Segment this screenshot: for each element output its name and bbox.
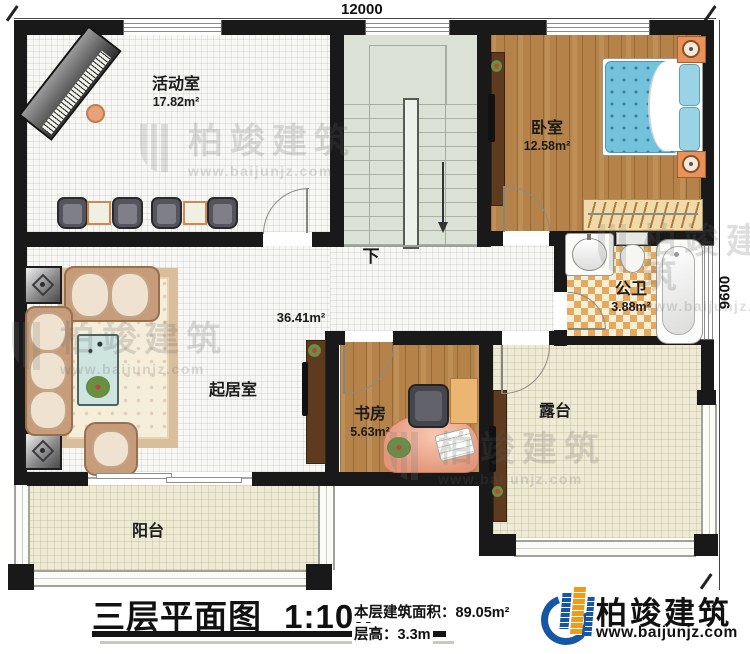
corner-block	[306, 564, 332, 590]
stairs-down-label: 下	[363, 247, 380, 267]
study-cabinet	[450, 378, 478, 424]
wall	[252, 472, 490, 486]
dimension-right-label: 9600	[717, 272, 734, 314]
nightstand	[677, 151, 706, 178]
sofa-cushion	[29, 312, 67, 352]
balcony-parapet	[30, 570, 308, 587]
sliding-door-panel	[166, 477, 242, 483]
sink-faucet	[587, 234, 591, 240]
balcony-floor	[26, 485, 318, 570]
desk-chair	[408, 384, 449, 428]
sofa-cushion	[29, 351, 67, 391]
desk-chair-seat	[415, 391, 442, 421]
stairs-center-rail	[403, 98, 419, 249]
corner-block	[8, 564, 34, 590]
corner-block	[697, 390, 716, 405]
corner-block	[694, 534, 718, 556]
closet-hangers	[586, 202, 700, 228]
wall	[325, 335, 339, 485]
stairs-flight-edge	[445, 45, 446, 245]
terrace-parapet	[701, 404, 717, 535]
sink-basin	[572, 238, 607, 271]
chair	[112, 197, 143, 229]
dimension-line-top	[14, 18, 716, 19]
living-area-value: 36.41m²	[277, 310, 325, 325]
room-label-terrace: 露台	[539, 403, 571, 422]
wall	[330, 20, 344, 247]
wall	[393, 331, 485, 345]
table-flowers	[86, 376, 110, 398]
sliding-door-panel	[96, 473, 172, 479]
floor-height-note: 层高：3.3m	[352, 623, 433, 644]
bathtub-inner	[662, 246, 695, 335]
terrace-parapet	[514, 540, 696, 557]
sink	[565, 233, 614, 276]
wall	[14, 20, 123, 35]
tv-cabinet-living	[306, 340, 326, 464]
chair	[207, 197, 238, 229]
piano-stool	[86, 104, 105, 123]
wall	[14, 232, 263, 247]
side-table	[183, 201, 207, 225]
room-label-bedroom: 卧室12.58m²	[524, 120, 571, 154]
coffee-table	[77, 334, 119, 406]
room-label-balcony: 阳台	[132, 523, 164, 542]
sofa-cushion	[110, 272, 150, 318]
floor-area-note: 本层建筑面积：89.05m²	[352, 601, 512, 622]
chair	[57, 197, 88, 229]
stairs-arrow-head-icon	[438, 222, 448, 233]
armchair-cushion	[92, 430, 130, 468]
plant	[492, 486, 503, 497]
stairs-landing-outline	[369, 45, 447, 105]
bed-pillow	[679, 107, 700, 151]
logo-building	[584, 597, 594, 637]
speaker-stand	[24, 432, 62, 470]
sofa-cushion	[70, 272, 110, 318]
room-label-living: 起居室	[209, 382, 257, 401]
room-label-bathroom: 公卫3.88m²	[611, 281, 651, 315]
bed-pillow	[679, 64, 700, 106]
wall	[489, 231, 503, 246]
window	[365, 20, 450, 35]
nightstand	[677, 36, 706, 63]
bathtub	[656, 239, 703, 344]
bathtub-drain	[674, 252, 679, 257]
stairs-flight-edge	[369, 45, 370, 245]
sofa-cushion	[29, 390, 67, 430]
plant	[308, 344, 321, 357]
wall	[549, 331, 567, 345]
wall	[448, 20, 546, 35]
speaker-stand	[24, 266, 62, 304]
balcony-parapet	[318, 485, 335, 570]
chair	[151, 197, 182, 229]
brand-website: www.baijunjz.com	[596, 624, 738, 642]
closet	[583, 199, 703, 231]
tv-bedroom	[488, 94, 495, 142]
floor-plan-page: 12000 9600	[0, 0, 750, 654]
brand-logo-icon	[541, 585, 593, 643]
plan-title-name: 三层平面图	[92, 598, 262, 635]
window	[123, 20, 222, 35]
desk-plant	[387, 437, 411, 458]
wall	[27, 472, 88, 486]
closet-rail	[588, 213, 698, 215]
side-table	[87, 201, 111, 225]
bed-blanket	[648, 61, 680, 151]
balcony-parapet	[14, 485, 30, 570]
window	[546, 20, 650, 35]
room-label-study: 书房5.63m²	[350, 406, 390, 440]
tv-living	[302, 362, 308, 416]
dimension-top-label: 12000	[341, 1, 383, 18]
dimension-tick	[700, 573, 712, 589]
corner-block	[487, 534, 516, 556]
terrace-tv	[489, 426, 496, 472]
room-label-activity: 活动室17.82m²	[152, 76, 200, 110]
plant	[491, 60, 502, 72]
stairs-direction-arrow	[442, 162, 444, 222]
